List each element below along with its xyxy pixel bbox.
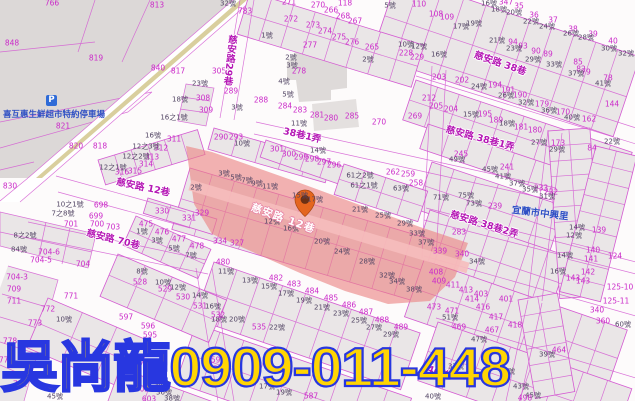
watermark-text: 吳尚龍0909-011-448 (1, 322, 510, 401)
parking-area-label: 喜互惠生鮮超市特約停車場 (3, 108, 105, 120)
map-viewport[interactable]: 76681384881984081782183082081878332號3053… (0, 0, 635, 401)
parking-icon: P (46, 95, 57, 106)
